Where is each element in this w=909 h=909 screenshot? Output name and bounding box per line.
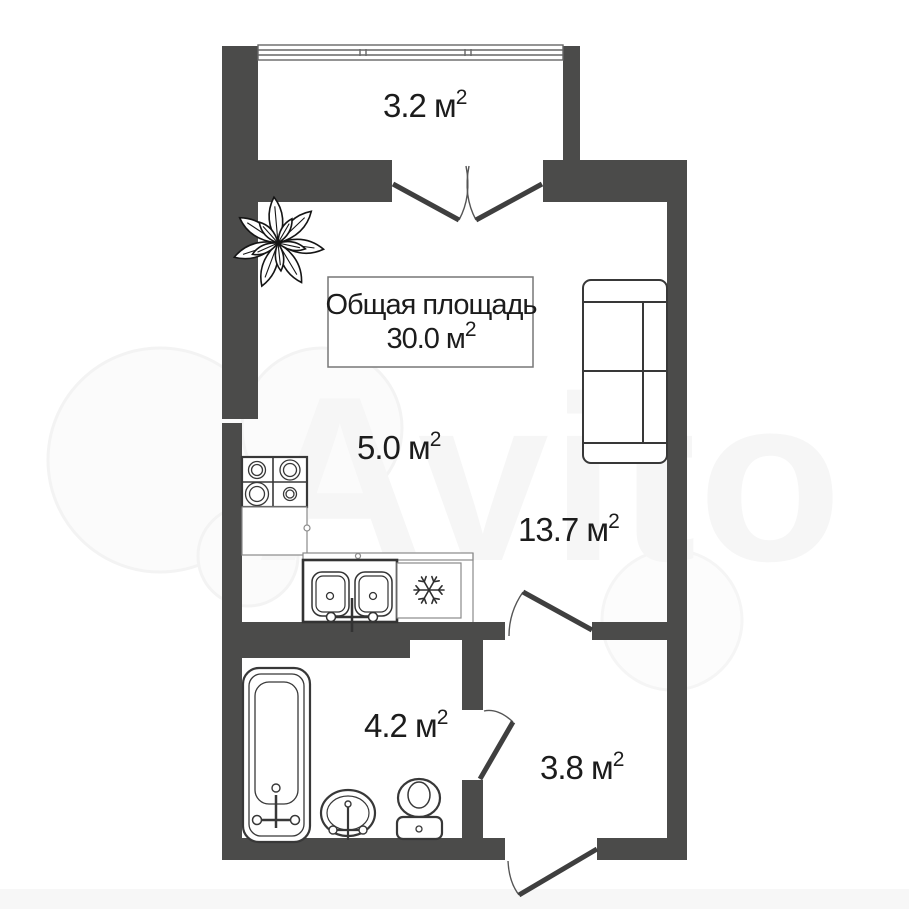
burner	[284, 464, 297, 477]
door-swing-arc	[484, 710, 513, 722]
faucet-handle	[291, 816, 300, 825]
wall-bottom-right	[597, 838, 687, 860]
total-area-title: Общая площадь	[325, 289, 536, 321]
burner	[250, 487, 265, 502]
wall-bath-hall-divider-bottom	[462, 780, 483, 838]
wall-hallway-top	[592, 622, 667, 640]
basin-drain	[345, 801, 351, 807]
cabinet-knob	[356, 554, 361, 559]
faucet-handle	[253, 816, 262, 825]
watermark-band	[0, 889, 909, 909]
toilet	[397, 779, 442, 839]
label-living-area: 13.7 м2	[518, 510, 619, 548]
stove	[242, 457, 307, 507]
door-leaf	[519, 849, 597, 895]
entrance-door	[508, 849, 597, 895]
wall-right	[667, 160, 687, 860]
total-area-box: Общая площадь 30.0 м2	[325, 277, 536, 367]
faucet-handle	[327, 613, 336, 622]
counter-cabinet	[242, 507, 307, 555]
washbasin	[321, 790, 375, 840]
door-swing-arc	[467, 166, 476, 220]
door-leaf	[393, 184, 459, 220]
cabinet-knob	[304, 525, 310, 531]
door-swing-arc	[459, 166, 468, 220]
label-balcony-area: 3.2 м2	[383, 86, 467, 124]
faucet-handle	[369, 613, 378, 622]
label-hallway-area: 3.8 м2	[540, 748, 624, 786]
kitchen-sink	[303, 560, 397, 632]
floorplan-image: Avito	[0, 0, 909, 909]
tub-drain	[272, 784, 280, 792]
faucet-handle	[329, 826, 337, 834]
door-leaf	[480, 722, 513, 779]
balcony-door	[393, 166, 542, 220]
wall-top-left	[222, 160, 392, 202]
bathtub	[243, 668, 310, 842]
toilet-bowl-inner	[408, 782, 430, 808]
interior-door-bathroom	[480, 710, 513, 779]
fridge	[397, 563, 461, 618]
sofa	[583, 280, 667, 463]
window-frame	[258, 45, 563, 60]
burner	[252, 465, 263, 476]
wall-balcony-right	[563, 46, 580, 160]
wall-bath-hall-divider-top	[462, 640, 483, 710]
door-leaf	[476, 184, 542, 220]
total-area-value: 30.0 м2	[386, 318, 475, 355]
wall-balcony-left	[222, 46, 258, 160]
burner	[286, 490, 294, 498]
faucet-handle	[359, 826, 367, 834]
label-kitchen-area: 5.0 м2	[357, 428, 441, 466]
sink-drain	[370, 593, 377, 600]
wall-top-right	[543, 160, 687, 202]
wall-kitchen-bathroom	[242, 622, 410, 658]
sink-drain	[327, 593, 334, 600]
wall-living-hallway	[410, 622, 505, 640]
balcony-window	[258, 45, 563, 60]
floorplan-svg: Avito	[0, 0, 909, 909]
wall-left-lower	[222, 423, 242, 838]
toilet-button	[416, 826, 422, 832]
label-bathroom-area: 4.2 м2	[364, 706, 448, 744]
